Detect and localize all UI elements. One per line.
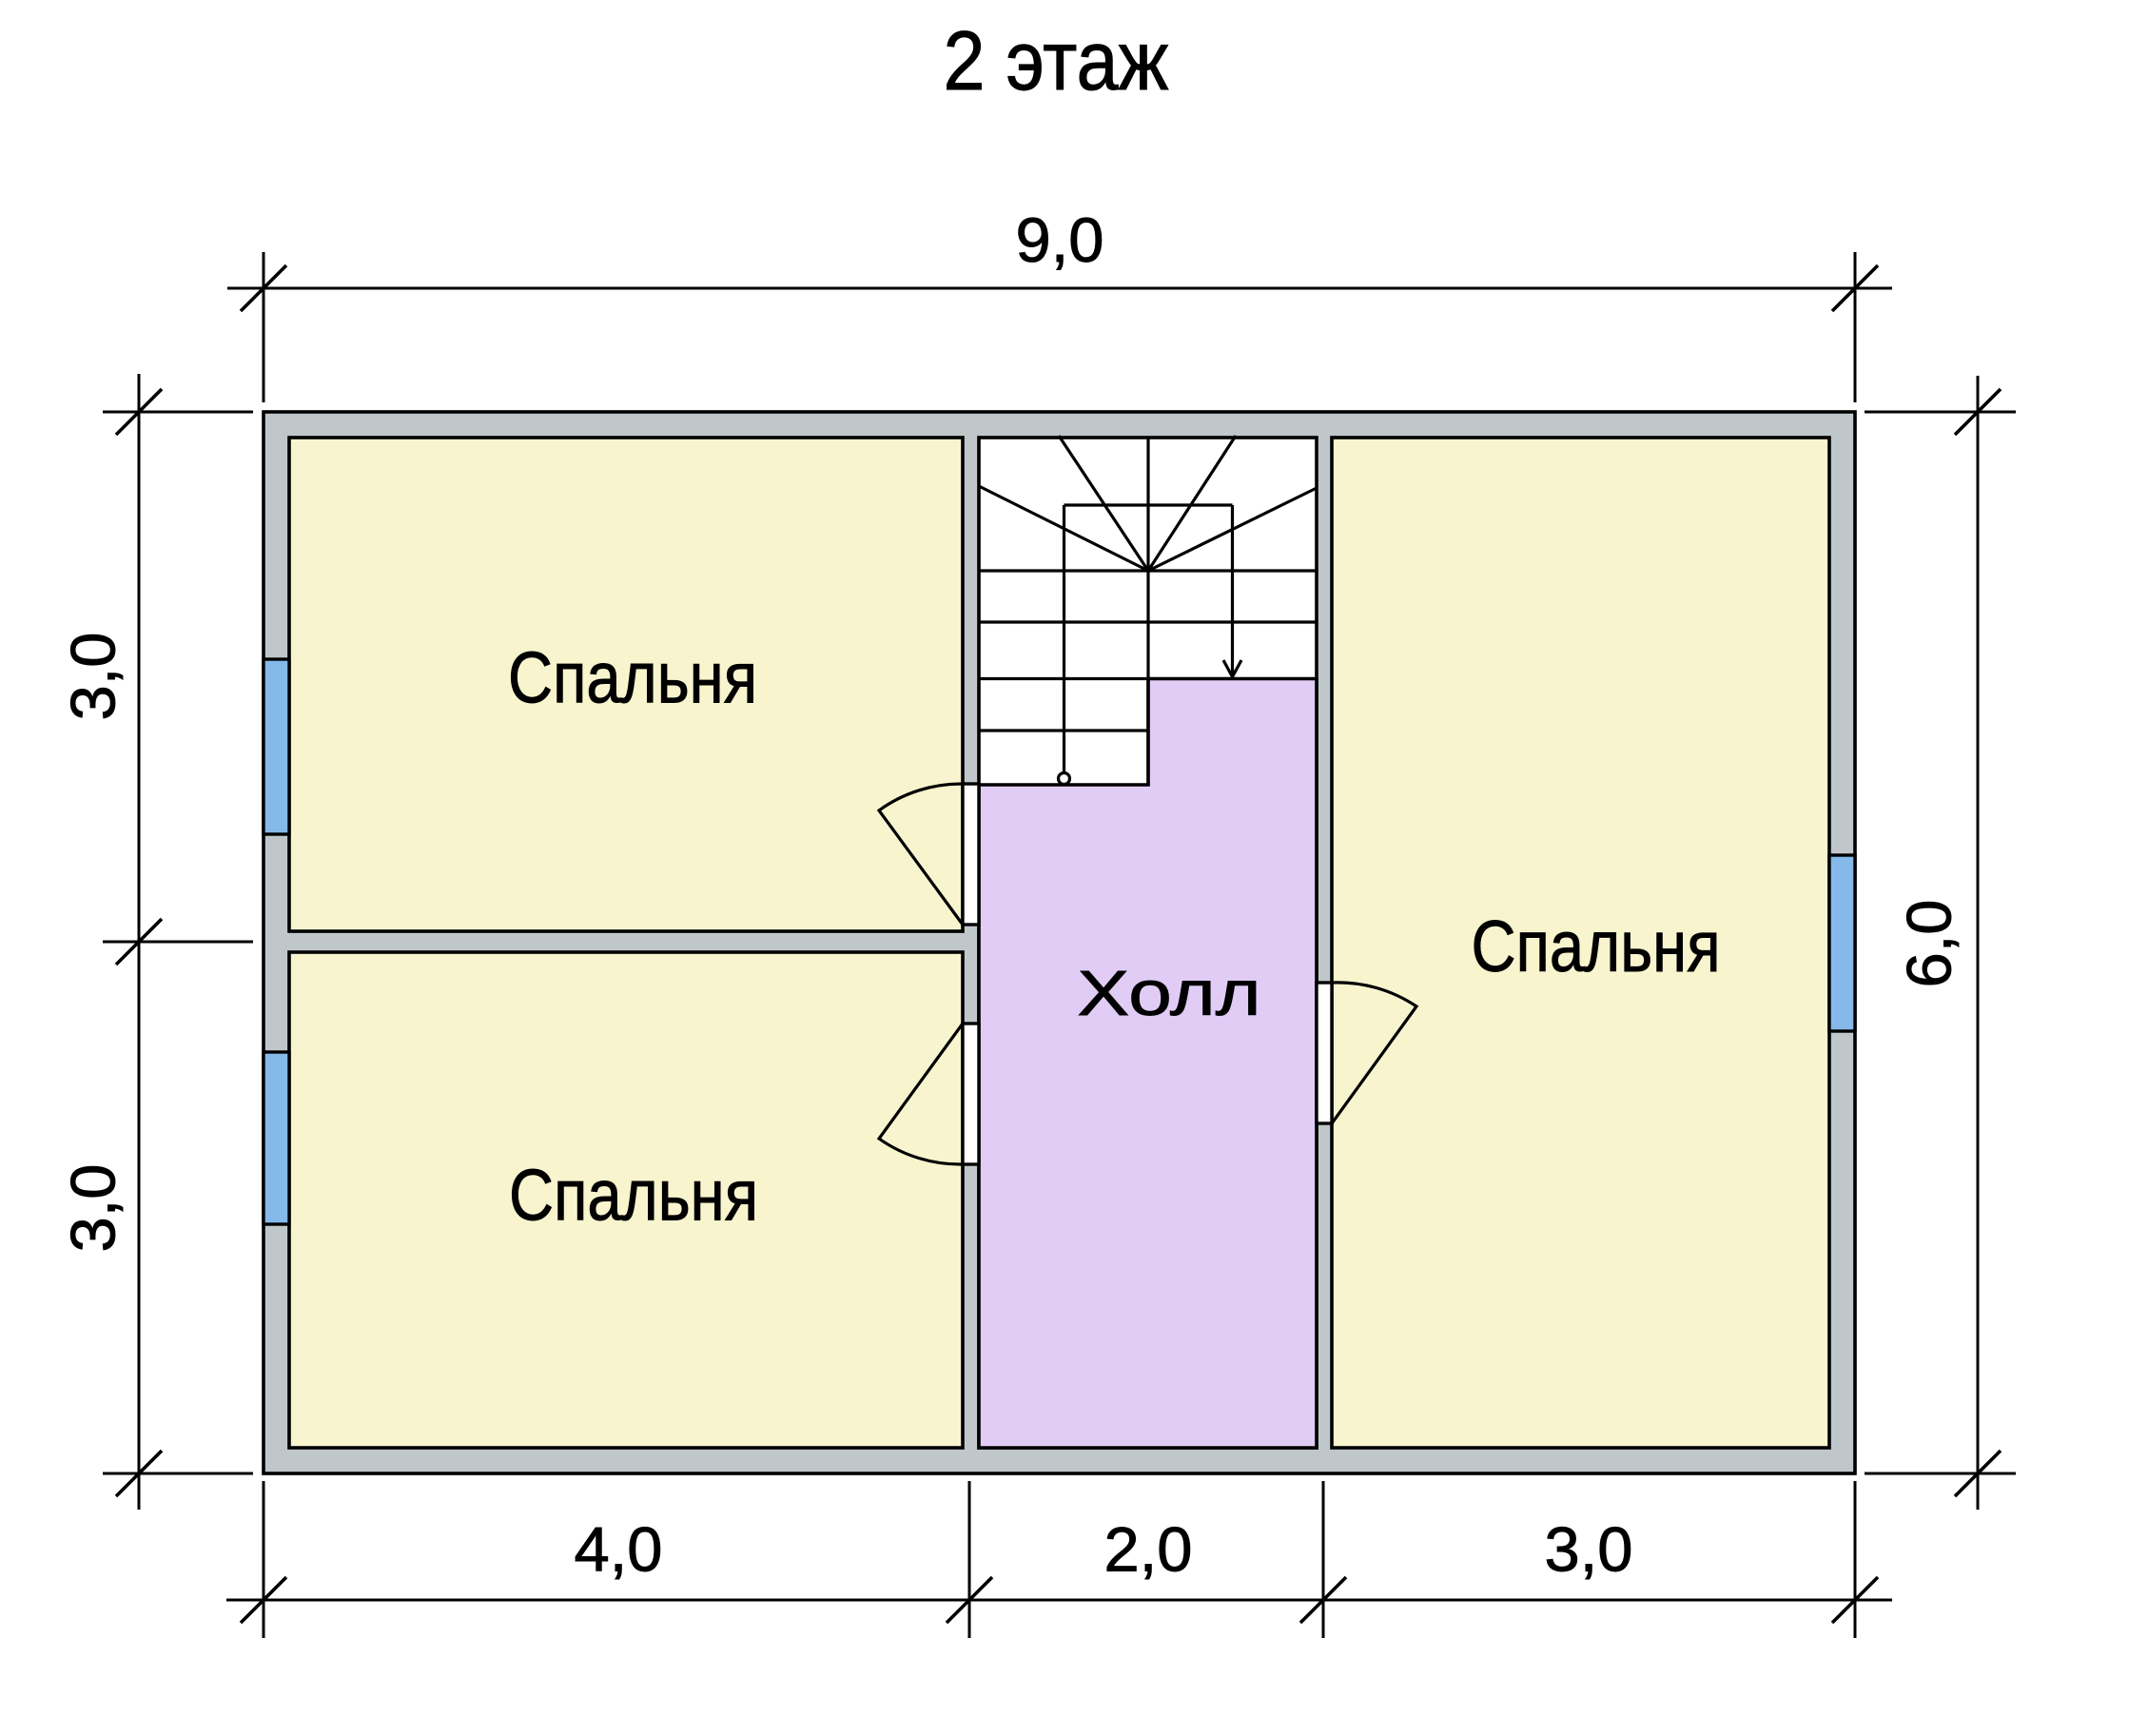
svg-text:9,0: 9,0	[1016, 205, 1104, 275]
svg-text:2 этаж: 2 этаж	[944, 13, 1169, 107]
svg-text:Спальня: Спальня	[509, 1155, 758, 1236]
svg-text:Спальня: Спальня	[508, 638, 757, 719]
svg-text:Спальня: Спальня	[1472, 907, 1721, 987]
svg-text:3,0: 3,0	[59, 633, 128, 721]
svg-text:3,0: 3,0	[1545, 1515, 1633, 1585]
svg-text:2,0: 2,0	[1104, 1515, 1193, 1585]
svg-text:3,0: 3,0	[59, 1164, 128, 1253]
svg-text:6,0: 6,0	[1895, 900, 1964, 988]
svg-text:Холл: Холл	[1078, 958, 1261, 1029]
svg-text:4,0: 4,0	[575, 1515, 663, 1585]
